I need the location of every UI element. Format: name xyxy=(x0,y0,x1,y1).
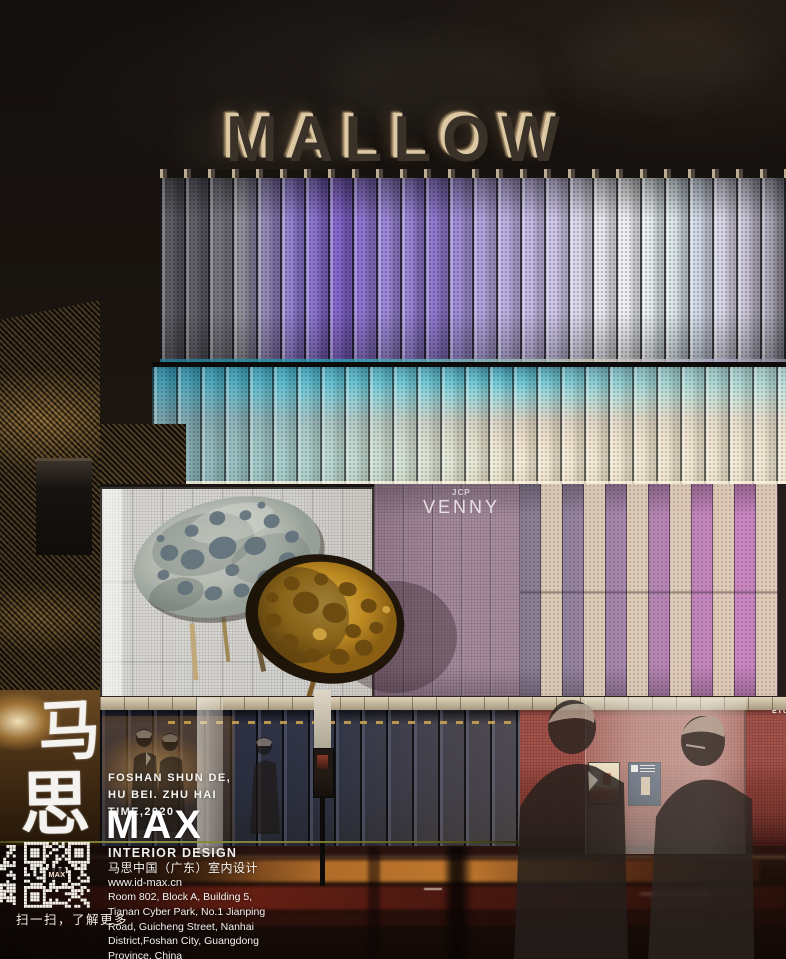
address-line: Tianan Cyber Park, No.1 Jianping xyxy=(108,905,265,920)
smoke-cloud xyxy=(560,20,760,100)
road-silhouette xyxy=(368,846,380,959)
address-line: Province, China xyxy=(108,949,265,959)
fin-band-upper-violet xyxy=(160,178,786,364)
ghost-pedestrian-2 xyxy=(648,716,754,959)
fin-band-lower-pink xyxy=(520,484,778,706)
calligraphy-char-2: 思 xyxy=(19,747,91,849)
road-silhouette xyxy=(443,846,473,959)
address-line: Road, Guicheng Street, Nanhai xyxy=(108,920,265,935)
discipline-cn: 马思中国（广东）室内设计 xyxy=(108,861,265,876)
ghost-pedestrians xyxy=(500,685,786,959)
road-highlight-dash xyxy=(424,888,442,890)
banner-pole-top xyxy=(314,690,331,748)
website: www.id-max.cn xyxy=(108,876,265,890)
left-building-window xyxy=(36,458,92,555)
qr-center-label: MAX xyxy=(24,842,90,908)
ghost-pedestrian-1 xyxy=(514,700,628,959)
fin-band-middle-cyan xyxy=(152,366,786,484)
architectural-rendering: MALLOW JCP VENNY xyxy=(0,0,786,959)
street-banner xyxy=(313,748,334,798)
facade-right-edge xyxy=(778,484,786,706)
qr-edge-fragment xyxy=(0,845,16,905)
qr-caption: 扫一扫，了解更多 xyxy=(16,909,128,928)
project-line: HU BEI. ZHU HAI xyxy=(108,787,231,804)
facade-band-divider xyxy=(152,362,786,367)
address-line: District,Foshan City, Guangdong xyxy=(108,934,265,949)
project-line: FOSHAN SHUN DE, xyxy=(108,770,231,787)
qr-center-text: MAX xyxy=(48,872,65,879)
discipline-en: INTERIOR DESIGN xyxy=(108,846,265,861)
mushroom-artwork xyxy=(100,487,460,704)
studio-info-block: INTERIOR DESIGN 马思中国（广东）室内设计 www.id-max.… xyxy=(108,846,265,959)
address-line: Room 802, Block A, Building 5, xyxy=(108,890,265,905)
building-sign-mallow: MALLOW xyxy=(226,103,571,177)
